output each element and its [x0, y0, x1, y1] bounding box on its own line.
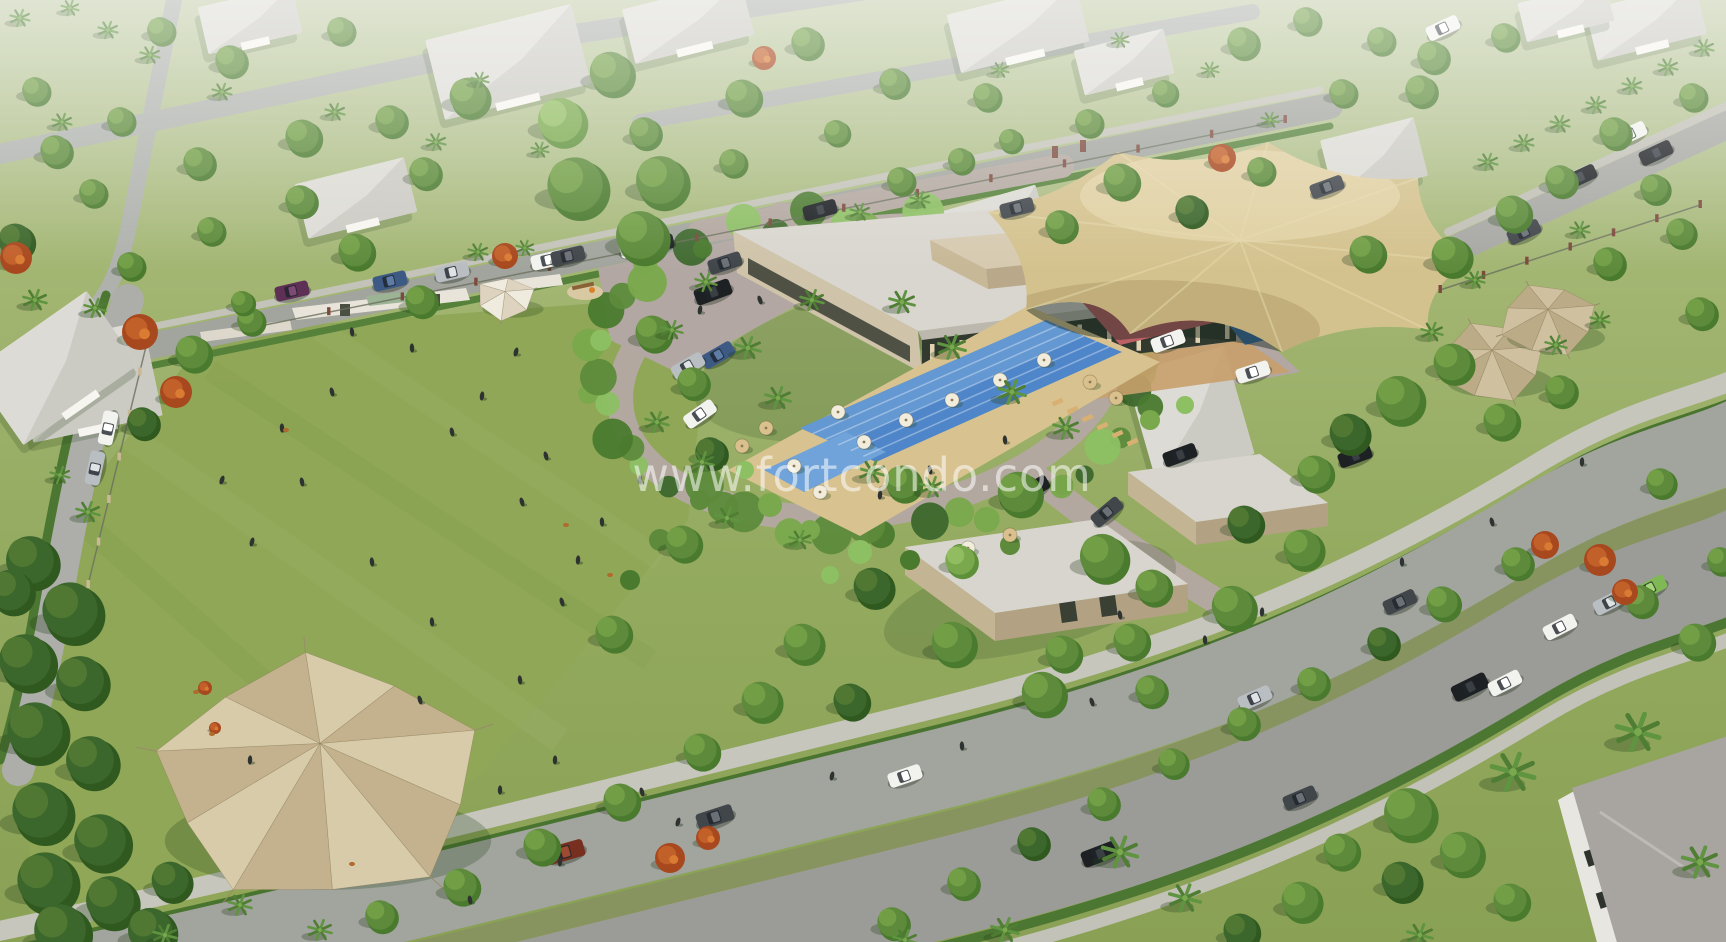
tree-highlight	[743, 683, 765, 705]
tree-highlight	[1442, 834, 1466, 858]
playground-slide	[589, 287, 595, 293]
shrub	[592, 419, 633, 460]
flame-tree-highlight	[139, 328, 150, 339]
tree-highlight	[88, 878, 117, 907]
tree-highlight	[605, 785, 625, 805]
tree-highlight	[1160, 750, 1177, 767]
umbrella-pole	[741, 445, 744, 448]
palm-crown	[1430, 330, 1434, 334]
tree-highlight	[887, 467, 907, 487]
tree-highlight	[10, 705, 43, 738]
fence-pillar	[138, 368, 141, 376]
aerial-scene	[0, 0, 1726, 942]
palm-crown	[318, 928, 322, 932]
tree-highlight	[45, 585, 78, 618]
tree-highlight	[1229, 507, 1249, 527]
shrub	[944, 497, 974, 527]
palm-crown	[1064, 426, 1069, 431]
tree-highlight	[597, 617, 617, 637]
flame-tree-highlight	[1599, 557, 1609, 567]
shrub	[974, 507, 1000, 533]
tree-highlight	[1089, 789, 1107, 807]
umbrella-pole	[999, 379, 1002, 382]
tree-highlight	[855, 569, 877, 591]
atmospheric-haze	[0, 0, 1726, 270]
shrub	[1050, 475, 1074, 499]
tree-highlight	[129, 409, 147, 427]
tree-highlight	[58, 658, 87, 687]
palm-crown	[670, 328, 674, 332]
flame-tree-highlight	[1544, 542, 1552, 550]
tree-highlight	[1024, 674, 1048, 698]
tree-highlight	[785, 625, 807, 647]
dog-figure	[209, 732, 215, 736]
fence-pillar	[118, 453, 121, 461]
tree-highlight	[1378, 378, 1404, 404]
palm-crown	[1002, 927, 1007, 932]
aerial-render-image: www.fortcondo.com	[0, 0, 1726, 942]
tree-highlight	[1047, 637, 1067, 657]
shrub	[620, 570, 640, 590]
tree-highlight	[1229, 709, 1247, 727]
flame-tree-highlight	[707, 836, 714, 843]
dog-figure	[349, 862, 355, 866]
dog-figure	[193, 690, 199, 694]
tree-highlight	[1708, 548, 1723, 563]
shrub	[590, 330, 611, 351]
palm-crown	[655, 420, 659, 424]
palm-crown	[1598, 318, 1602, 322]
flame-tree-highlight	[669, 855, 678, 864]
palm-crown	[1697, 859, 1703, 865]
flame-tree-highlight	[175, 389, 185, 399]
tree-highlight	[1369, 629, 1387, 647]
tree-highlight	[37, 907, 68, 938]
palm-crown	[798, 538, 802, 542]
umbrella-pole	[765, 427, 768, 430]
tree-highlight	[177, 337, 197, 357]
tree-highlight	[1325, 835, 1345, 855]
tree-highlight	[77, 817, 108, 848]
tree-highlight	[1214, 588, 1238, 612]
umbrella-pole	[863, 441, 866, 444]
tree-highlight	[1648, 470, 1665, 487]
umbrella-pole	[1115, 397, 1118, 400]
tree-highlight	[949, 869, 967, 887]
flame-tree-highlight	[1624, 589, 1632, 597]
palm-crown	[58, 473, 62, 477]
palm-crown	[900, 300, 905, 305]
flame-tree-highlight	[205, 687, 209, 691]
tree-highlight	[1019, 829, 1037, 847]
tree-highlight	[1299, 457, 1319, 477]
fence-pillar	[474, 278, 477, 286]
shrub	[736, 461, 754, 479]
palm-crown	[1473, 278, 1477, 282]
palm-crown	[86, 510, 90, 514]
tree-highlight	[445, 870, 465, 890]
palm-crown	[163, 933, 167, 937]
palm-crown	[1182, 895, 1188, 901]
shrub	[758, 493, 782, 517]
tree-highlight	[1547, 377, 1565, 395]
tree-highlight	[1115, 625, 1135, 645]
tree-highlight	[153, 863, 175, 885]
tree-highlight	[1383, 863, 1405, 885]
shrub	[658, 476, 680, 498]
tree-highlight	[1485, 405, 1505, 425]
palm-crown	[746, 346, 751, 351]
tree-highlight	[1428, 588, 1447, 607]
tree-highlight	[637, 317, 657, 337]
tree-highlight	[1331, 415, 1353, 437]
tree-highlight	[525, 830, 545, 850]
tree-highlight	[20, 855, 53, 888]
umbrella-pole	[1043, 359, 1046, 362]
umbrella-pole	[837, 411, 840, 414]
palm-crown	[1634, 728, 1642, 736]
fence-pillar	[401, 292, 404, 300]
palm-crown	[903, 938, 907, 942]
flame-tree-highlight	[215, 727, 219, 731]
tree-highlight	[8, 538, 37, 567]
fence-pillar	[1439, 285, 1442, 293]
tree-highlight	[934, 624, 958, 648]
tree-highlight	[68, 738, 97, 767]
palm-crown	[1117, 849, 1123, 855]
tree-highlight	[2, 637, 33, 668]
umbrella-pole	[1089, 381, 1092, 384]
tree-highlight	[1495, 885, 1515, 905]
palm-crown	[1009, 389, 1014, 394]
tree-highlight	[1137, 571, 1157, 591]
palm-crown	[776, 396, 781, 401]
umbrella-pole	[793, 465, 796, 468]
tree-highlight	[667, 527, 687, 547]
shrub	[580, 359, 617, 396]
shrub	[900, 550, 920, 570]
palm-crown	[704, 280, 708, 284]
palm-crown	[238, 903, 242, 907]
tree-highlight	[1225, 915, 1245, 935]
fence-pillar	[97, 538, 100, 546]
shrub	[1076, 465, 1094, 483]
shrub	[1176, 396, 1194, 414]
umbrella-pole	[905, 419, 908, 422]
fence-pillar	[327, 307, 330, 315]
tree-highlight	[1435, 345, 1457, 367]
palm-crown	[725, 516, 729, 520]
tree-highlight	[1082, 536, 1108, 562]
palm-crown	[1554, 343, 1558, 347]
palm-crown	[1509, 768, 1517, 776]
umbrella-pole	[1009, 534, 1012, 537]
tree-highlight	[679, 369, 697, 387]
tree-highlight	[1285, 531, 1307, 553]
umbrella-pole	[951, 399, 954, 402]
shrub	[848, 540, 872, 564]
tree-highlight	[1137, 677, 1155, 695]
palm-crown	[1418, 933, 1423, 938]
dog-figure	[563, 523, 569, 527]
tree-highlight	[1680, 625, 1700, 645]
tree-highlight	[1386, 790, 1415, 819]
palm-crown	[870, 470, 875, 475]
palm-crown	[810, 298, 814, 302]
tree-highlight	[1283, 883, 1305, 905]
tree-highlight	[1503, 549, 1521, 567]
fence-pillar	[87, 580, 90, 588]
tree-highlight	[1687, 299, 1705, 317]
umbrella-pole	[819, 491, 822, 494]
shrub	[690, 490, 710, 510]
tree-highlight	[685, 735, 705, 755]
tree-highlight	[879, 909, 897, 927]
fence-pillar	[107, 495, 110, 503]
tree-highlight	[835, 685, 855, 705]
tree-highlight	[15, 785, 48, 818]
palm-crown	[700, 460, 704, 464]
tree-highlight	[407, 287, 425, 305]
tree-highlight	[947, 547, 965, 565]
palm-crown	[93, 306, 97, 310]
dog-figure	[283, 428, 289, 432]
tree-highlight	[232, 292, 245, 305]
palm-crown	[949, 344, 954, 349]
tree-highlight	[367, 902, 385, 920]
shrub	[1140, 410, 1160, 430]
shrub	[911, 502, 949, 540]
palm-crown	[33, 298, 37, 302]
shrub	[821, 566, 839, 584]
dog-figure	[607, 573, 613, 577]
palm-crown	[930, 485, 934, 489]
tree-highlight	[1000, 474, 1024, 498]
tree-highlight	[1299, 669, 1317, 687]
